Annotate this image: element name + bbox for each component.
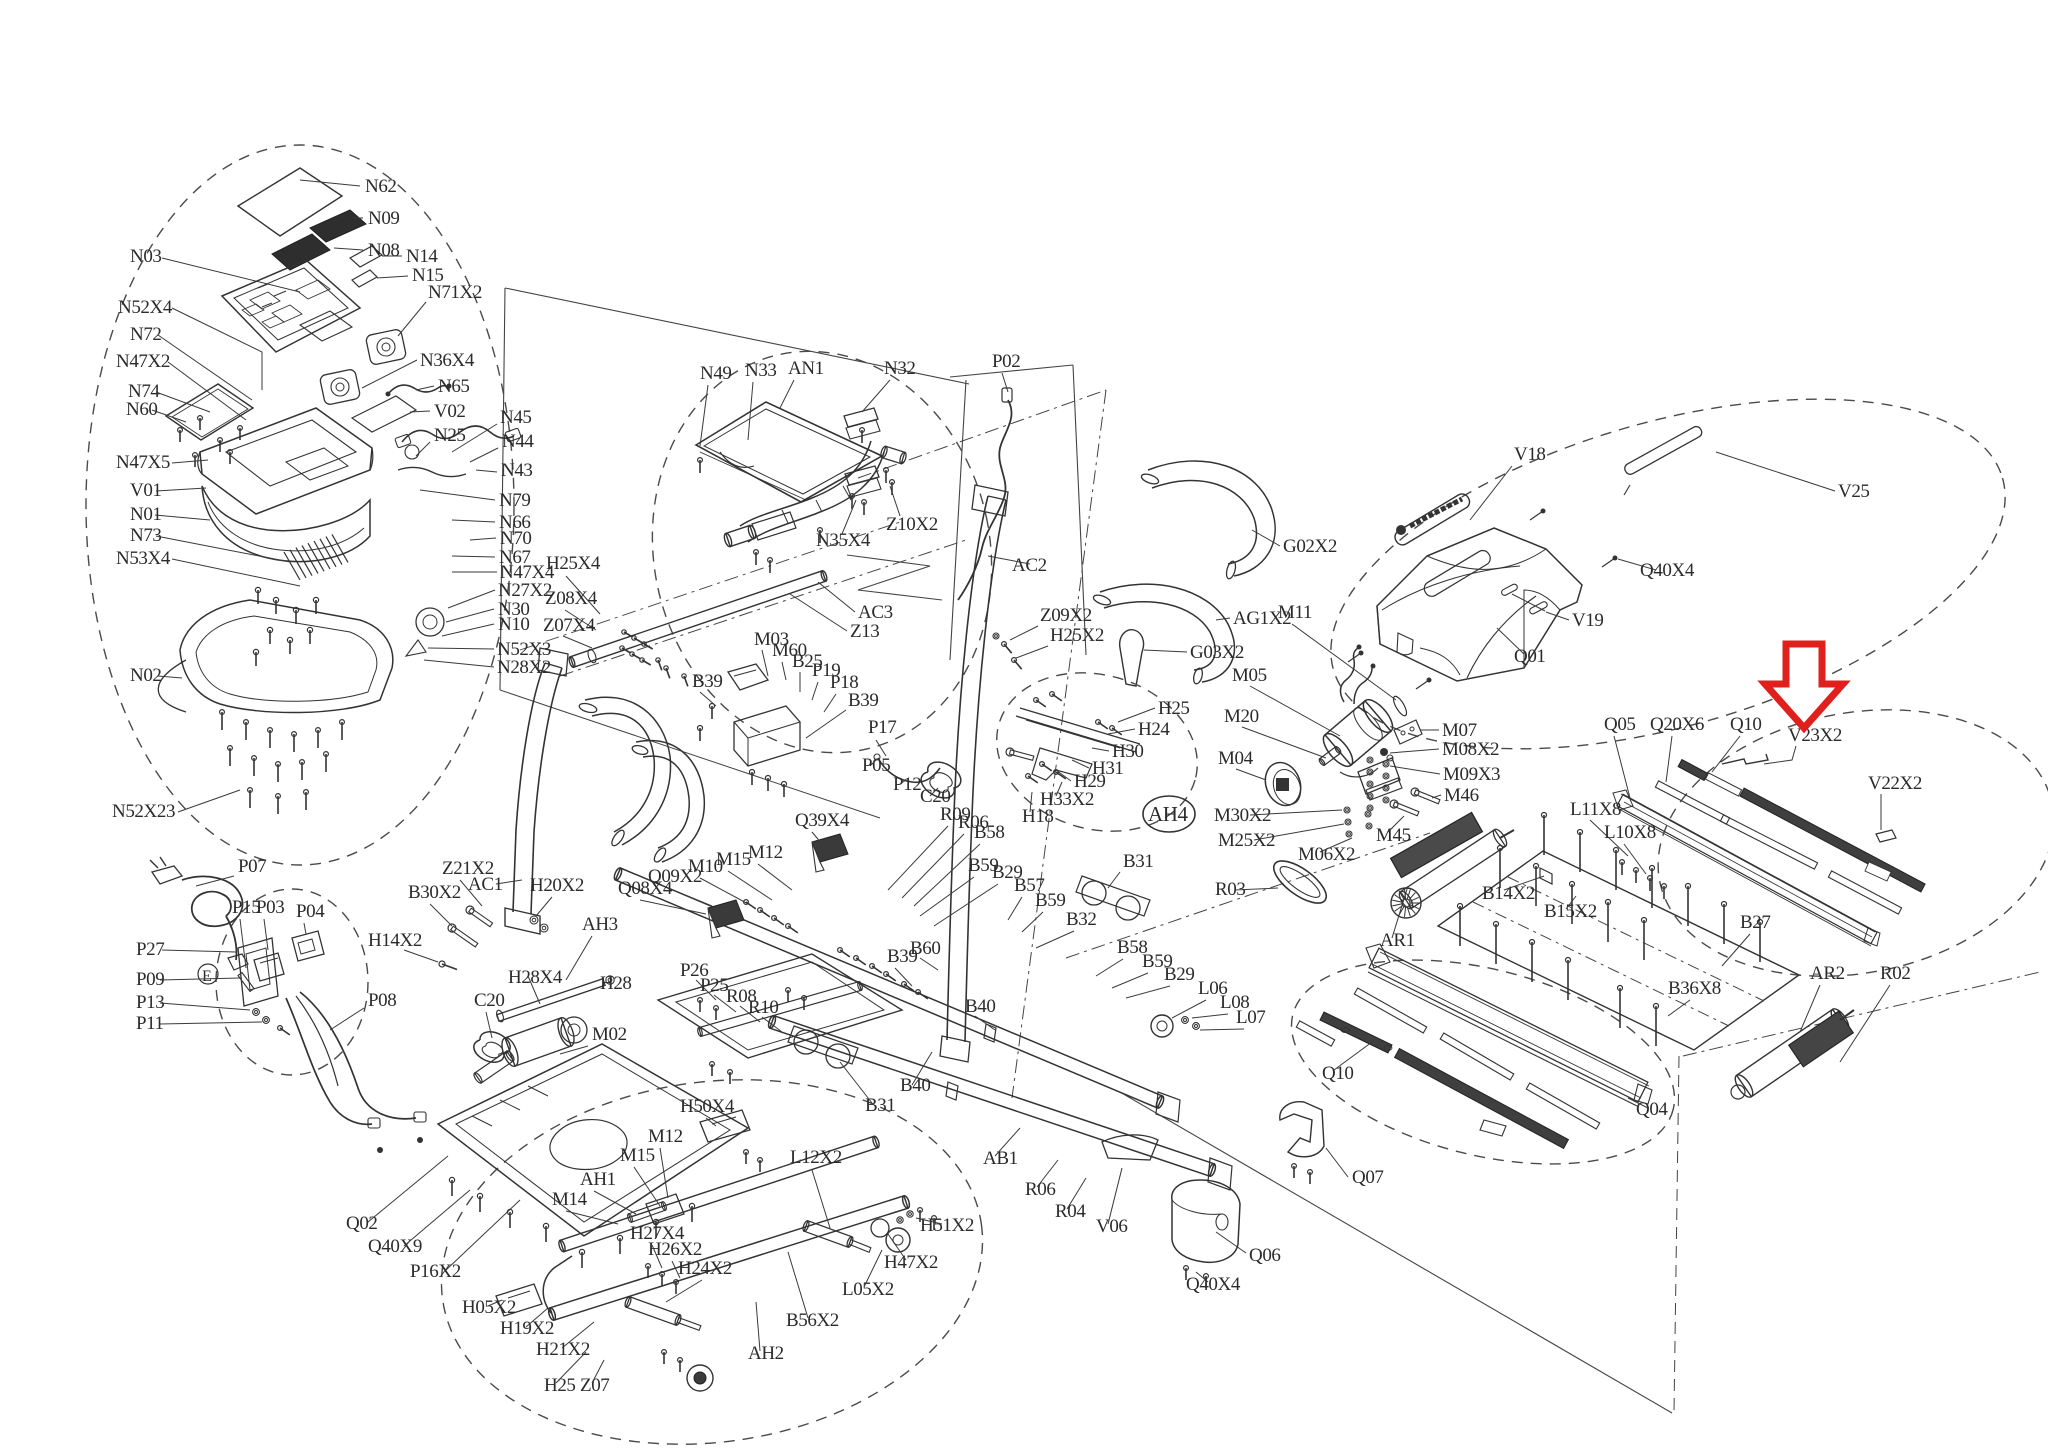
svg-text:V23X2: V23X2 xyxy=(1788,725,1842,746)
svg-text:V18: V18 xyxy=(1514,444,1546,465)
svg-text:AC3: AC3 xyxy=(858,602,893,623)
svg-text:Q05: Q05 xyxy=(1604,714,1636,735)
svg-text:N36X4: N36X4 xyxy=(420,350,475,371)
svg-text:B40: B40 xyxy=(900,1075,930,1096)
svg-text:N52X23: N52X23 xyxy=(112,801,175,822)
svg-text:N49: N49 xyxy=(700,363,732,384)
svg-text:B36X8: B36X8 xyxy=(1668,978,1721,999)
svg-text:M08X2: M08X2 xyxy=(1442,739,1499,760)
svg-text:M15: M15 xyxy=(620,1145,655,1166)
svg-text:M07: M07 xyxy=(1442,720,1477,741)
svg-text:P12: P12 xyxy=(893,774,921,795)
svg-text:P13: P13 xyxy=(136,992,164,1013)
svg-text:P25: P25 xyxy=(700,975,728,996)
svg-text:Z10X2: Z10X2 xyxy=(886,514,938,535)
svg-text:R10: R10 xyxy=(748,997,778,1018)
svg-text:M20: M20 xyxy=(1224,706,1259,727)
svg-text:V25: V25 xyxy=(1838,481,1870,502)
svg-text:H47X2: H47X2 xyxy=(884,1252,938,1273)
svg-text:Q10: Q10 xyxy=(1730,714,1762,735)
svg-text:B29: B29 xyxy=(1164,964,1194,985)
svg-text:R04: R04 xyxy=(1055,1201,1086,1222)
svg-text:B59: B59 xyxy=(1035,890,1065,911)
svg-text:N70: N70 xyxy=(500,528,532,549)
svg-text:N35X4: N35X4 xyxy=(816,530,871,551)
svg-text:N73: N73 xyxy=(130,525,162,546)
svg-text:H24X2: H24X2 xyxy=(678,1258,732,1279)
svg-text:M04: M04 xyxy=(1218,748,1254,769)
svg-text:M46: M46 xyxy=(1444,785,1479,806)
svg-text:B31: B31 xyxy=(865,1095,895,1116)
svg-text:R02: R02 xyxy=(1880,963,1910,984)
svg-text:P05: P05 xyxy=(862,755,890,776)
svg-text:Q07: Q07 xyxy=(1352,1167,1384,1188)
svg-text:H18: H18 xyxy=(1022,806,1054,827)
svg-text:M02: M02 xyxy=(592,1024,627,1045)
svg-text:G03X2: G03X2 xyxy=(1190,642,1244,663)
svg-text:V02: V02 xyxy=(434,401,466,422)
svg-text:P07: P07 xyxy=(238,856,266,877)
svg-text:N14: N14 xyxy=(406,246,438,267)
svg-text:Q10: Q10 xyxy=(1322,1063,1354,1084)
svg-text:Z08X4: Z08X4 xyxy=(545,588,598,609)
svg-text:B40: B40 xyxy=(965,996,995,1017)
svg-text:V22X2: V22X2 xyxy=(1868,773,1922,794)
svg-text:N27X2: N27X2 xyxy=(498,580,552,601)
svg-text:H50X4: H50X4 xyxy=(680,1096,735,1117)
svg-text:N03: N03 xyxy=(130,246,162,267)
svg-text:Z09X2: Z09X2 xyxy=(1040,605,1092,626)
svg-text:Z13: Z13 xyxy=(850,621,879,642)
svg-text:AN1: AN1 xyxy=(788,358,824,379)
svg-text:AR2: AR2 xyxy=(1810,963,1845,984)
svg-text:N25: N25 xyxy=(434,425,466,446)
svg-text:N44: N44 xyxy=(502,431,534,452)
svg-text:Z07X4: Z07X4 xyxy=(543,615,596,636)
svg-text:P02: P02 xyxy=(992,351,1020,372)
svg-text:M05: M05 xyxy=(1232,665,1267,686)
svg-text:N65: N65 xyxy=(438,376,470,397)
svg-text:N79: N79 xyxy=(499,490,531,511)
svg-text:M30X2: M30X2 xyxy=(1214,805,1271,826)
svg-text:P03: P03 xyxy=(256,897,284,918)
svg-text:AC2: AC2 xyxy=(1012,555,1047,576)
svg-text:Q40X4: Q40X4 xyxy=(1640,560,1695,581)
svg-text:M09X3: M09X3 xyxy=(1443,764,1500,785)
svg-text:N52X4: N52X4 xyxy=(118,297,173,318)
svg-text:N09: N09 xyxy=(368,208,400,229)
svg-text:N47X2: N47X2 xyxy=(116,351,170,372)
svg-text:N62: N62 xyxy=(365,176,397,197)
svg-text:H19X2: H19X2 xyxy=(500,1318,554,1339)
svg-text:P16X2: P16X2 xyxy=(410,1261,461,1282)
svg-text:P08: P08 xyxy=(368,990,396,1011)
svg-text:N33: N33 xyxy=(745,360,777,381)
svg-text:Q39X4: Q39X4 xyxy=(795,810,850,831)
svg-text:B56X2: B56X2 xyxy=(786,1310,839,1331)
svg-text:Z21X2: Z21X2 xyxy=(442,858,494,879)
svg-text:H24: H24 xyxy=(1138,719,1170,740)
svg-text:H25X4: H25X4 xyxy=(546,553,601,574)
svg-text:H28: H28 xyxy=(600,973,632,994)
svg-text:P04: P04 xyxy=(296,901,325,922)
svg-text:M06X2: M06X2 xyxy=(1298,844,1355,865)
svg-text:M12: M12 xyxy=(648,1126,683,1147)
svg-text:Q40X4: Q40X4 xyxy=(1186,1274,1241,1295)
svg-text:E: E xyxy=(202,968,211,985)
svg-text:M11: M11 xyxy=(1278,602,1312,623)
svg-text:Q20X6: Q20X6 xyxy=(1650,714,1704,735)
svg-text:L10X8: L10X8 xyxy=(1604,822,1656,843)
svg-text:N45: N45 xyxy=(500,407,532,428)
svg-text:L12X2: L12X2 xyxy=(790,1147,842,1168)
svg-text:H20X2: H20X2 xyxy=(530,875,584,896)
svg-text:N02: N02 xyxy=(130,665,162,686)
svg-text:N60: N60 xyxy=(126,399,158,420)
svg-text:L11X8: L11X8 xyxy=(1570,799,1621,820)
svg-text:N71X2: N71X2 xyxy=(428,282,482,303)
svg-text:AH3: AH3 xyxy=(582,914,618,935)
svg-text:N32: N32 xyxy=(884,358,916,379)
svg-text:M45: M45 xyxy=(1376,825,1411,846)
svg-text:H25X2: H25X2 xyxy=(1050,625,1104,646)
svg-text:AH2: AH2 xyxy=(748,1343,784,1364)
svg-text:H05X2: H05X2 xyxy=(462,1297,516,1318)
svg-text:Q02: Q02 xyxy=(346,1213,378,1234)
svg-text:N10: N10 xyxy=(498,614,530,635)
svg-text:N53X4: N53X4 xyxy=(116,548,171,569)
svg-text:AR1: AR1 xyxy=(1380,930,1415,951)
svg-text:AH4: AH4 xyxy=(1148,802,1189,826)
svg-text:H25: H25 xyxy=(1158,698,1190,719)
svg-text:C20: C20 xyxy=(474,990,504,1011)
svg-text:N43: N43 xyxy=(501,460,533,481)
svg-text:L05X2: L05X2 xyxy=(842,1279,894,1300)
svg-text:P27: P27 xyxy=(136,939,164,960)
svg-text:N01: N01 xyxy=(130,504,162,525)
svg-text:H51X2: H51X2 xyxy=(920,1215,974,1236)
svg-text:V06: V06 xyxy=(1096,1216,1128,1237)
svg-text:B27: B27 xyxy=(1740,912,1770,933)
svg-text:G02X2: G02X2 xyxy=(1283,536,1337,557)
svg-text:N72: N72 xyxy=(130,324,162,345)
svg-text:N47X5: N47X5 xyxy=(116,452,170,473)
svg-text:AB1: AB1 xyxy=(983,1148,1018,1169)
svg-text:V19: V19 xyxy=(1572,610,1604,631)
svg-text:N08: N08 xyxy=(368,240,400,261)
svg-text:B32: B32 xyxy=(1066,909,1096,930)
svg-text:B39: B39 xyxy=(692,671,722,692)
svg-text:Q08X4: Q08X4 xyxy=(618,878,673,899)
svg-text:Q04: Q04 xyxy=(1636,1099,1668,1120)
svg-text:P17: P17 xyxy=(868,717,896,738)
svg-text:M14: M14 xyxy=(552,1189,588,1210)
svg-text:M12: M12 xyxy=(748,842,783,863)
svg-text:B31: B31 xyxy=(1123,851,1153,872)
svg-text:B39: B39 xyxy=(848,690,878,711)
svg-text:AH1: AH1 xyxy=(580,1169,616,1190)
svg-text:Q06: Q06 xyxy=(1249,1245,1281,1266)
svg-text:L07: L07 xyxy=(1236,1007,1265,1028)
svg-text:B15X2: B15X2 xyxy=(1544,901,1597,922)
svg-text:B14X2: B14X2 xyxy=(1482,883,1535,904)
svg-text:B39: B39 xyxy=(887,946,917,967)
svg-text:H26X2: H26X2 xyxy=(648,1239,702,1260)
svg-text:B58: B58 xyxy=(974,822,1004,843)
svg-text:B30X2: B30X2 xyxy=(408,882,461,903)
svg-text:M15: M15 xyxy=(716,849,751,870)
svg-text:P11: P11 xyxy=(136,1013,164,1034)
svg-text:Q40X9: Q40X9 xyxy=(368,1236,422,1257)
svg-text:H25: H25 xyxy=(544,1375,576,1396)
svg-text:M25X2: M25X2 xyxy=(1218,830,1275,851)
svg-text:H28X4: H28X4 xyxy=(508,967,563,988)
svg-text:H14X2: H14X2 xyxy=(368,930,422,951)
